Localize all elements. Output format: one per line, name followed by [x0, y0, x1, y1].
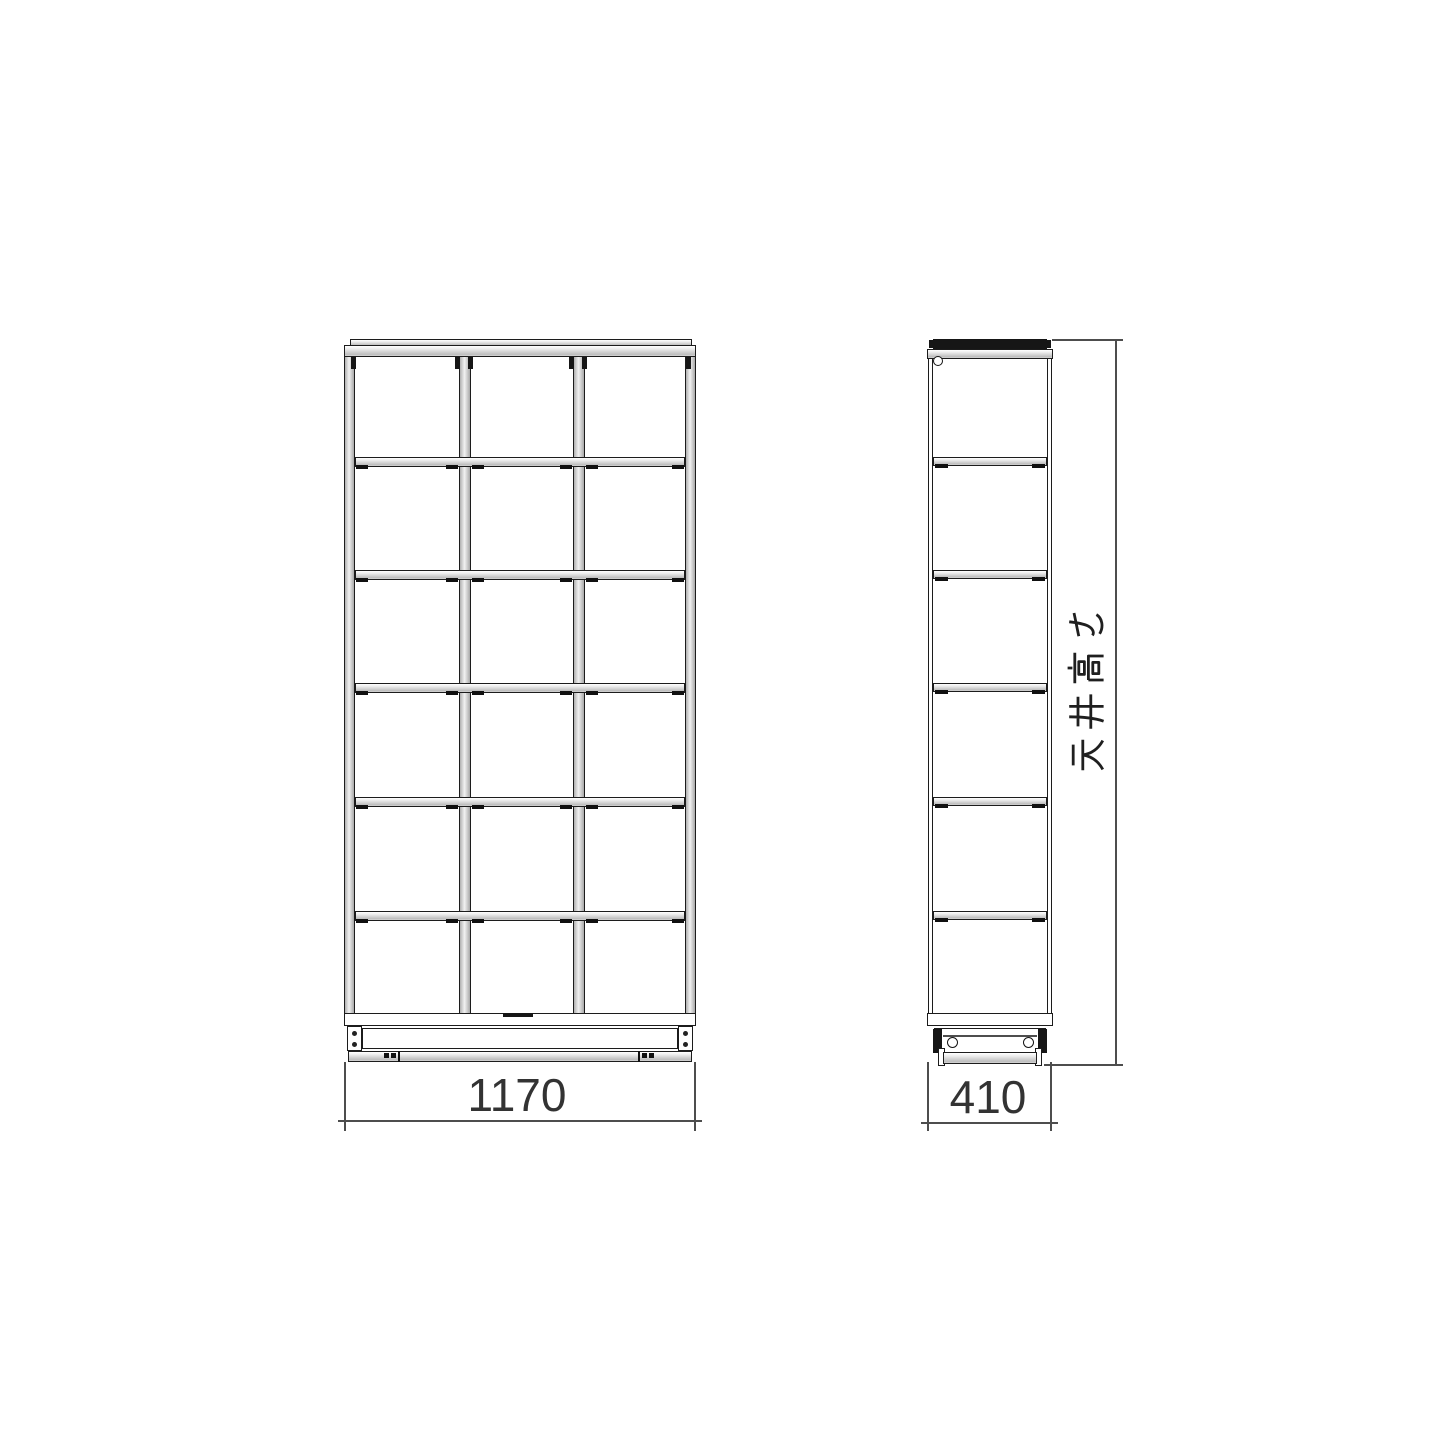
shelf-pin-tab [586, 805, 598, 809]
technical-drawing-canvas: 1170 410 [0, 0, 1445, 1445]
shelf-pin-tab [472, 691, 484, 695]
front-left-stile [344, 356, 355, 1015]
leveling-foot-left [947, 1037, 958, 1048]
shelf-support-tab [1032, 690, 1045, 694]
side-depth-dimension-label: 410 [908, 1074, 1068, 1120]
shelf-pin-tab [560, 691, 572, 695]
leveling-foot-right [1023, 1037, 1034, 1048]
shelf-support-tab [1032, 918, 1045, 922]
shelf-pin-tab [672, 691, 684, 695]
shelf-pin-tab [472, 578, 484, 582]
side-top-cap [927, 349, 1053, 359]
front-shelf [355, 683, 685, 693]
bracket-screw-dot [352, 1042, 357, 1047]
hook-hole [933, 356, 943, 366]
shelf-pin-tab [446, 919, 458, 923]
side-shelf [933, 570, 1047, 579]
kanji-ten-glyph [1066, 735, 1106, 775]
shelf-support-tab [935, 464, 948, 468]
rail-fitting-mark [384, 1053, 389, 1058]
rail-joint-line [638, 1051, 640, 1062]
shelf-pin-tab [472, 465, 484, 469]
front-shelf [355, 911, 685, 921]
shelf-pin-tab [356, 465, 368, 469]
shelf-pin-tab [472, 919, 484, 923]
rail-fitting-mark [642, 1053, 647, 1058]
shelf-pin-tab [446, 465, 458, 469]
ceiling-height-label [1064, 605, 1108, 775]
cap-joint-mark [569, 357, 574, 369]
rail-joint-line [398, 1051, 400, 1062]
rail-fitting-mark [649, 1053, 654, 1058]
bracket-screw-dot [352, 1031, 357, 1036]
bracket-screw-dot [683, 1031, 688, 1036]
side-top-cap-dark [933, 339, 1047, 349]
cap-joint-mark [582, 357, 587, 369]
plinth-bracket-right [678, 1026, 693, 1051]
front-right-stile [685, 356, 696, 1015]
base-mid-line [943, 1035, 1037, 1037]
front-shelf [355, 570, 685, 580]
front-top-cap [344, 345, 696, 357]
cap-joint-mark [468, 357, 473, 369]
front-width-dimension-label: 1170 [437, 1072, 597, 1118]
side-shelf [933, 683, 1047, 692]
shelf-pin-tab [586, 578, 598, 582]
shelf-pin-tab [560, 465, 572, 469]
rail-fitting-mark [391, 1053, 396, 1058]
shelf-pin-tab [356, 805, 368, 809]
shelf-support-tab [1032, 804, 1045, 808]
kick-panel [362, 1028, 678, 1049]
shelf-support-tab [1032, 577, 1045, 581]
shelf-support-tab [935, 804, 948, 808]
height-dim-line [1115, 339, 1117, 1066]
shelf-pin-tab [356, 578, 368, 582]
hiragana-sa-glyph [1066, 605, 1106, 645]
shelf-pin-tab [586, 691, 598, 695]
front-shelf [355, 797, 685, 807]
shelf-support-tab [935, 577, 948, 581]
shelf-pin-tab [446, 805, 458, 809]
cap-joint-mark [686, 357, 691, 369]
shelf-pin-tab [560, 578, 572, 582]
plinth-bracket-left [347, 1026, 362, 1051]
shelf-pin-tab [672, 805, 684, 809]
shelf-support-tab [935, 690, 948, 694]
front-bottom-mark [503, 1013, 533, 1017]
shelf-pin-tab [356, 919, 368, 923]
shelf-pin-tab [672, 465, 684, 469]
height-ext-line-top [1052, 339, 1123, 341]
shelf-pin-tab [560, 919, 572, 923]
cap-joint-mark [351, 357, 356, 369]
side-panel-back-edge [1047, 358, 1052, 1014]
shelf-pin-tab [472, 805, 484, 809]
side-shelf [933, 911, 1047, 920]
shelf-pin-tab [586, 919, 598, 923]
side-cap-clip-left [929, 340, 939, 348]
shelf-pin-tab [446, 691, 458, 695]
shelf-pin-tab [560, 805, 572, 809]
height-ext-line-bottom [1044, 1064, 1123, 1066]
shelf-pin-tab [672, 578, 684, 582]
cap-joint-mark [455, 357, 460, 369]
side-shelf [933, 797, 1047, 806]
shelf-support-tab [935, 918, 948, 922]
bracket-screw-dot [683, 1042, 688, 1047]
shelf-support-tab [1032, 464, 1045, 468]
side-bottom-bar [927, 1013, 1053, 1026]
shelf-pin-tab [672, 919, 684, 923]
kanji-i-glyph [1066, 692, 1106, 732]
shelf-pin-tab [446, 578, 458, 582]
shelf-pin-tab [586, 465, 598, 469]
front-shelf [355, 457, 685, 467]
kanji-kou-glyph [1066, 648, 1106, 688]
side-cap-clip-right [1041, 340, 1051, 348]
side-bottom-rail [943, 1052, 1037, 1064]
side-shelf [933, 457, 1047, 466]
shelf-pin-tab [356, 691, 368, 695]
